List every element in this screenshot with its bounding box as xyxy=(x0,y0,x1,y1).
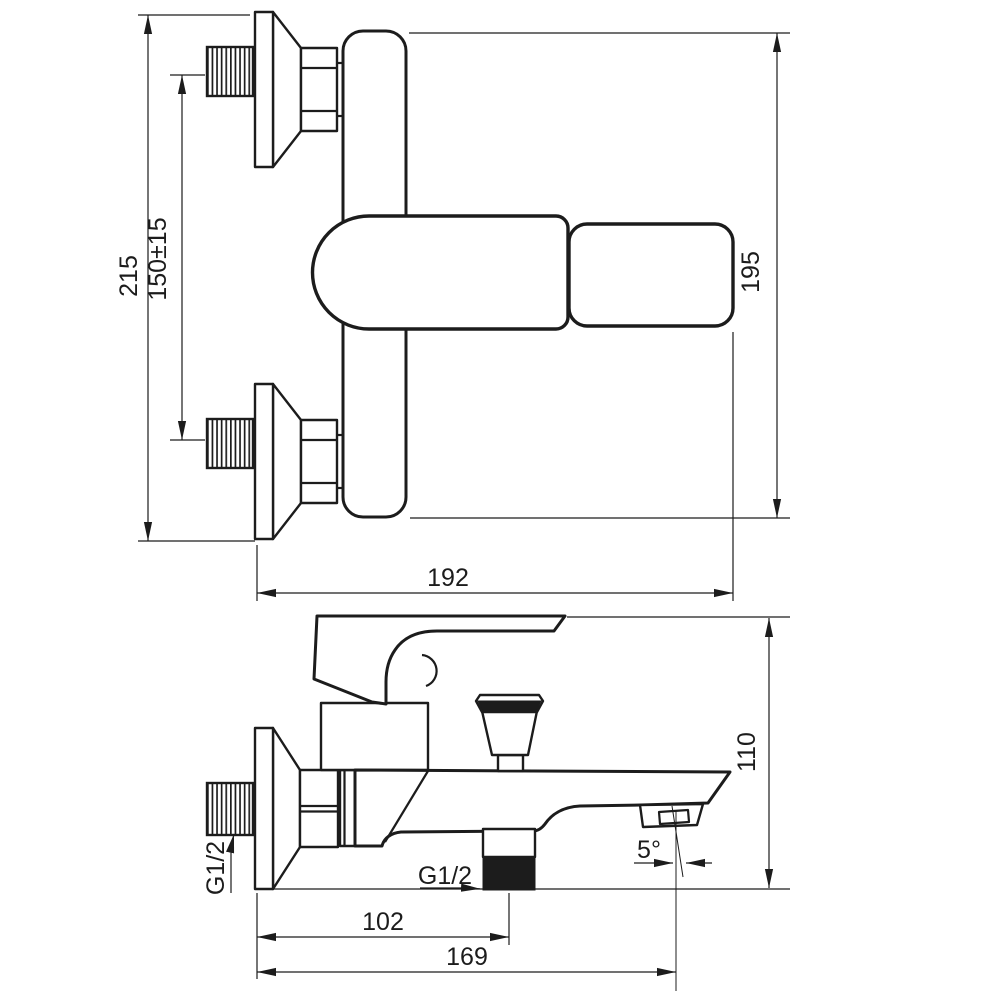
threaded-nipple-side xyxy=(207,783,253,835)
dim-label-192: 192 xyxy=(427,564,469,592)
label-shower-thread: G1/2 xyxy=(418,862,480,890)
side-view: 110 102 169 5° G1/2 xyxy=(202,616,790,991)
connector-thread xyxy=(483,857,535,890)
dim-inlet-spacing: 150±15 xyxy=(144,75,205,440)
dim-label-195: 195 xyxy=(737,251,765,293)
hex-nut-bottom xyxy=(301,420,337,503)
bath-mixer-technical-drawing: 215 150±15 195 192 xyxy=(0,0,1000,1000)
label-wall-thread: G1/2 xyxy=(202,834,234,895)
shower-hose-connector xyxy=(483,829,535,890)
front-handle xyxy=(569,224,733,326)
hex-nut-top xyxy=(301,48,337,131)
dim-label-215: 215 xyxy=(115,255,143,297)
escutcheon-cone-bottom xyxy=(273,384,301,539)
escutcheon-flange-side xyxy=(255,728,273,889)
leader-arrow xyxy=(466,888,480,889)
spout-aerator xyxy=(640,804,703,827)
front-bottom-wall-connection xyxy=(207,384,344,539)
connector-collar xyxy=(483,829,535,857)
diverter-cap-band xyxy=(478,701,541,712)
front-top-wall-connection xyxy=(207,12,344,167)
escutcheon-flange-bottom xyxy=(255,384,273,539)
thread-label-wall: G1/2 xyxy=(202,841,230,895)
threaded-nipple-top xyxy=(207,47,253,96)
escutcheon-flange-top xyxy=(255,12,273,167)
handle-pivot-arc xyxy=(422,655,437,686)
front-view: 215 150±15 195 192 xyxy=(115,12,790,601)
side-cartridge-housing xyxy=(321,703,428,770)
dim-label-5deg: 5° xyxy=(637,836,661,864)
escutcheon-cone-side xyxy=(273,728,300,889)
escutcheon-cone-top xyxy=(273,12,301,167)
dim-spout-reach: 169 xyxy=(257,943,676,972)
thread-label-shower: G1/2 xyxy=(418,862,472,890)
dim-label-102: 102 xyxy=(362,908,404,936)
side-handle-lever xyxy=(314,616,565,704)
diverter-stem xyxy=(498,755,523,771)
dim-label-169: 169 xyxy=(446,943,488,971)
hex-nut-side xyxy=(300,770,338,847)
dim-spout-angle: 5° xyxy=(634,806,712,991)
front-lever-base xyxy=(313,216,569,329)
threaded-nipple-bottom xyxy=(207,419,253,468)
diverter-knob xyxy=(476,695,543,771)
dim-label-150: 150±15 xyxy=(144,217,172,300)
dim-label-110: 110 xyxy=(733,732,761,772)
diverter-body xyxy=(482,711,537,755)
technical-drawing-page: 215 150±15 195 192 xyxy=(0,0,1000,1000)
